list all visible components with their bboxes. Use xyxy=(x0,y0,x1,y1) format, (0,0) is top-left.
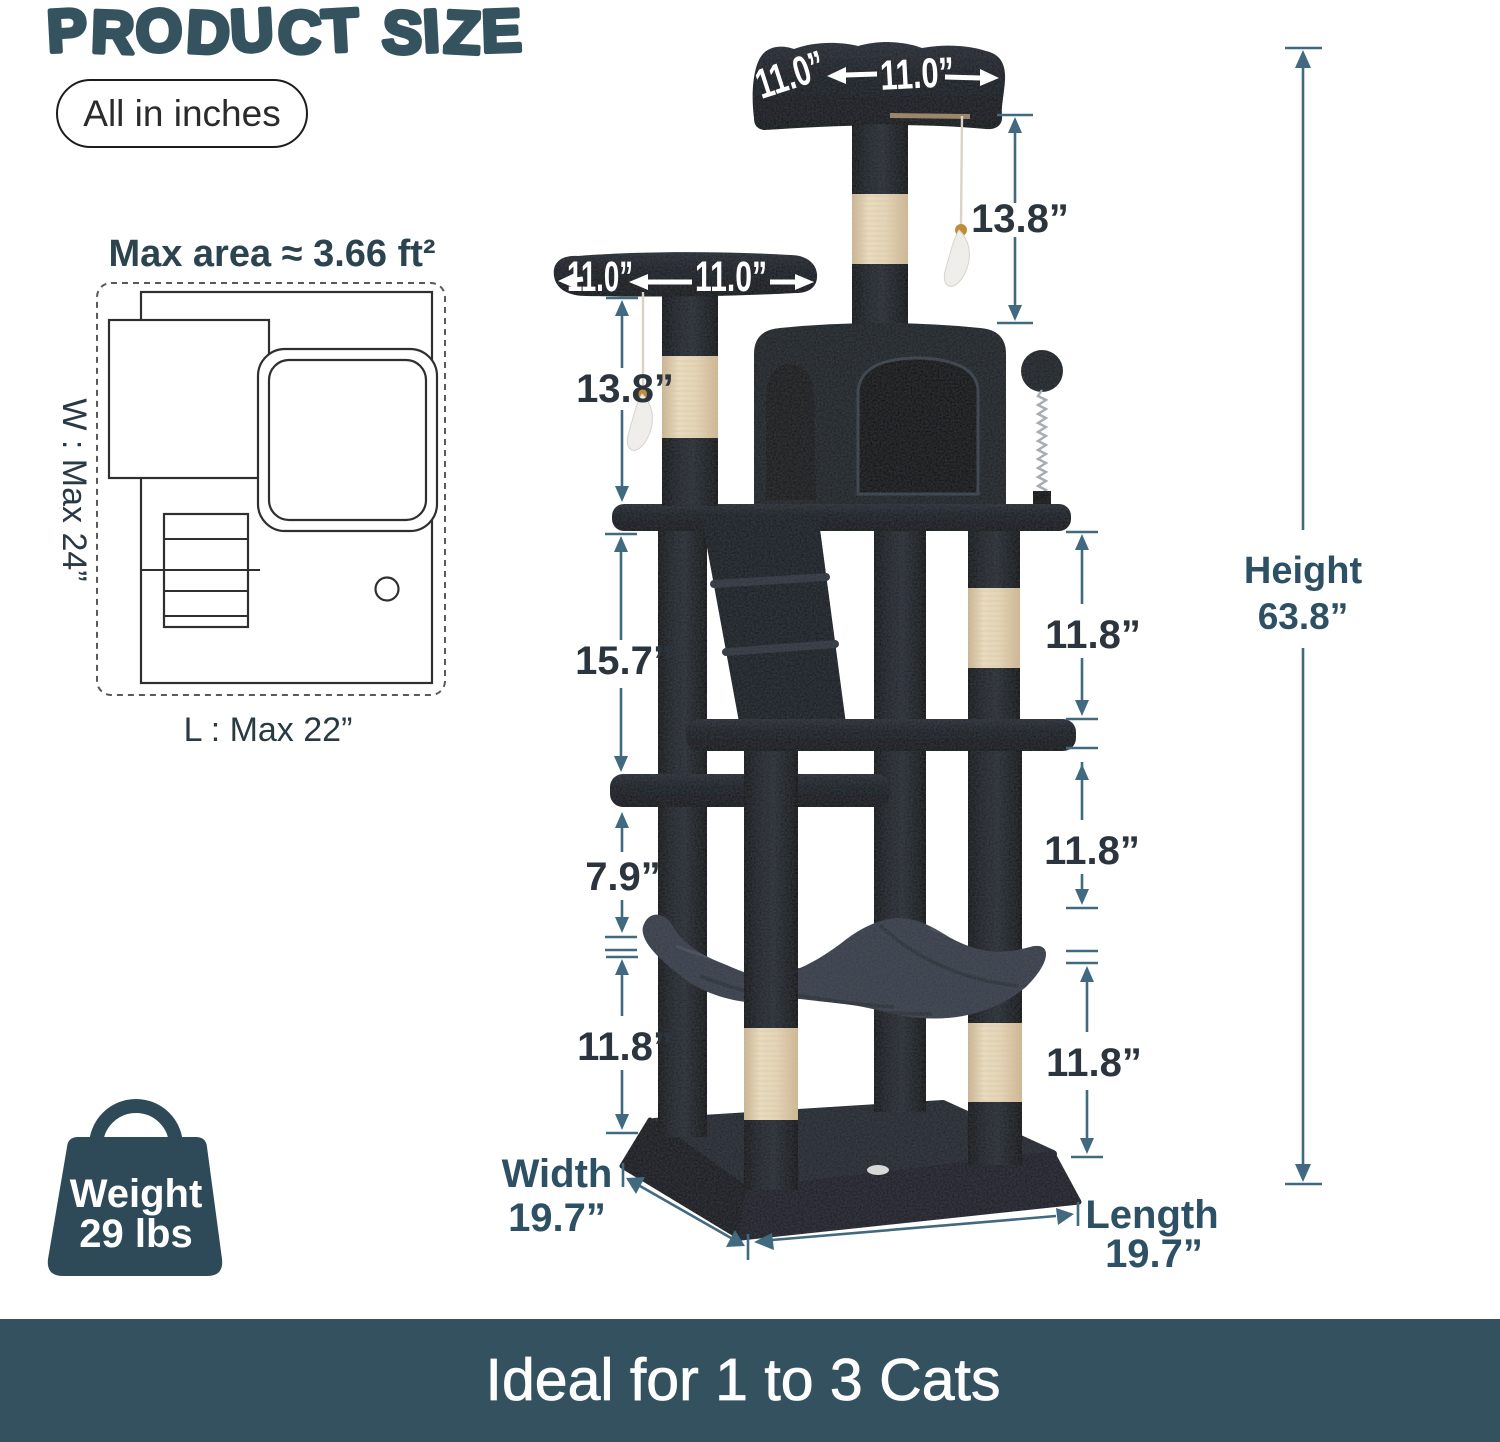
svg-text:29 lbs: 29 lbs xyxy=(79,1212,192,1256)
svg-text:PRODUCT SIZE: PRODUCT SIZE xyxy=(45,0,525,67)
svg-text:Height: Height xyxy=(1244,550,1363,592)
svg-text:11.8”: 11.8” xyxy=(1044,829,1140,873)
svg-text:19.7”: 19.7” xyxy=(1105,1232,1203,1276)
svg-text:11.8”: 11.8” xyxy=(577,1025,673,1069)
svg-text:Max area ≈ 3.66 ft²: Max area ≈ 3.66 ft² xyxy=(108,233,435,275)
svg-text:11.8”: 11.8” xyxy=(1046,1041,1142,1085)
svg-text:11.8”: 11.8” xyxy=(1045,613,1141,657)
svg-text:7.9”: 7.9” xyxy=(585,855,661,899)
svg-text:15.7”: 15.7” xyxy=(575,639,673,683)
svg-text:11.0”: 11.0” xyxy=(695,253,767,301)
svg-text:11.0”: 11.0” xyxy=(879,48,955,99)
svg-text:Weight: Weight xyxy=(70,1172,203,1216)
svg-text:All in inches: All in inches xyxy=(83,93,280,134)
svg-text:19.7”: 19.7” xyxy=(508,1196,606,1240)
svg-text:Width: Width xyxy=(502,1152,613,1196)
svg-text:Ideal for 1 to 3 Cats: Ideal for 1 to 3 Cats xyxy=(486,1347,1001,1413)
svg-text:L : Max 22”: L : Max 22” xyxy=(184,711,353,749)
svg-text:13.8”: 13.8” xyxy=(576,367,674,411)
svg-text:W : Max 24”: W : Max 24” xyxy=(55,398,93,581)
svg-text:63.8”: 63.8” xyxy=(1258,596,1349,637)
svg-text:13.8”: 13.8” xyxy=(971,197,1069,241)
svg-text:Length: Length xyxy=(1085,1193,1218,1237)
